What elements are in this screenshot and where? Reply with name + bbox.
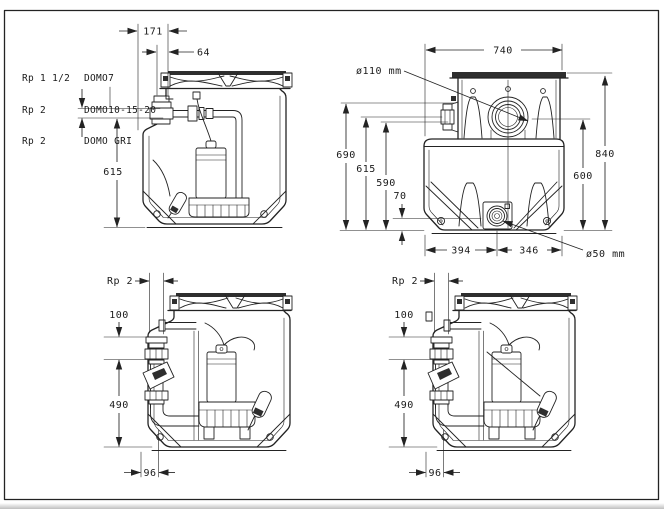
dim-inlet-dia-label: ø110 mm — [356, 66, 402, 77]
legend-row: Rp 2 DOMO GRI — [22, 137, 156, 148]
dim-600-label: 600 — [573, 171, 593, 182]
dim-490-br-label: 490 — [394, 400, 414, 411]
legend-model: DOMO GRI — [84, 137, 132, 148]
dim-590-label: 590 — [376, 178, 396, 189]
dim-690-label: 690 — [336, 150, 356, 161]
dim-70-label: 70 — [393, 191, 406, 202]
dim-615-front-label: 615 — [356, 164, 376, 175]
inlet-collar — [450, 72, 568, 139]
inlet-deflector — [153, 160, 170, 196]
thread-label-br: Rp 2 — [392, 276, 418, 287]
threaded-outlet — [146, 337, 167, 343]
drain-boss — [483, 202, 512, 229]
tank-assembly-vertical-discharge — [143, 293, 292, 451]
tank-lid — [168, 293, 292, 311]
pipe-union — [188, 106, 197, 121]
dim-740-label: 740 — [493, 46, 513, 57]
dim-394-label: 394 — [451, 246, 471, 257]
legend-thread: Rp 2 — [22, 137, 84, 148]
dim-615-label: 615 — [103, 167, 123, 178]
legend-thread: Rp 2 — [22, 106, 84, 117]
legend-row: Rp 1 1/2 DOMO7 — [22, 74, 156, 85]
tank-assembly-mirror — [428, 293, 577, 451]
view-top-right: 740 ø110 mm 690 615 590 70 840 600 394 — [336, 44, 625, 260]
power-cable — [197, 99, 211, 141]
dim-171-label: 171 — [143, 27, 163, 38]
legend-model: DOMO7 — [84, 74, 114, 85]
dim-96-bl-label: 96 — [143, 468, 156, 479]
dim-96-br-label: 96 — [428, 468, 441, 479]
connection-legend: Rp 1 1/2 DOMO7 Rp 2 DOMO10-15-20 Rp 2 DO… — [22, 53, 156, 158]
union-nut — [145, 349, 168, 359]
tank-lid — [160, 71, 292, 89]
cable-gland — [193, 92, 200, 99]
dim-64-label: 64 — [197, 48, 210, 59]
dim-840-label: 840 — [595, 149, 615, 160]
technical-drawing-page: 171 64 615 — [0, 0, 664, 509]
union-nut-lower — [145, 391, 168, 400]
discharge-riser — [143, 320, 199, 426]
thread-label-bl: Rp 2 — [107, 276, 133, 287]
dim-490-bl-label: 490 — [109, 400, 129, 411]
dim-drain-dia-label: ø50 mm — [586, 249, 625, 260]
submersible-pump — [199, 323, 273, 439]
wall-bracket — [426, 312, 432, 321]
drain-dia-leader — [503, 221, 583, 250]
guide-rail — [194, 331, 199, 440]
power-cable — [205, 323, 224, 345]
float-switch — [167, 191, 188, 218]
cable-loop — [224, 337, 255, 350]
dim-100-br-label: 100 — [394, 310, 414, 321]
page-bottom-shadow — [0, 503, 664, 509]
legend-row: Rp 2 DOMO10-15-20 — [22, 106, 156, 117]
dim-346-label: 346 — [519, 246, 539, 257]
legend-model: DOMO10-15-20 — [84, 106, 156, 117]
legend-thread: Rp 1 1/2 — [22, 74, 84, 85]
inlet-fitting — [441, 96, 458, 132]
dim-100-bl-label: 100 — [109, 310, 129, 321]
